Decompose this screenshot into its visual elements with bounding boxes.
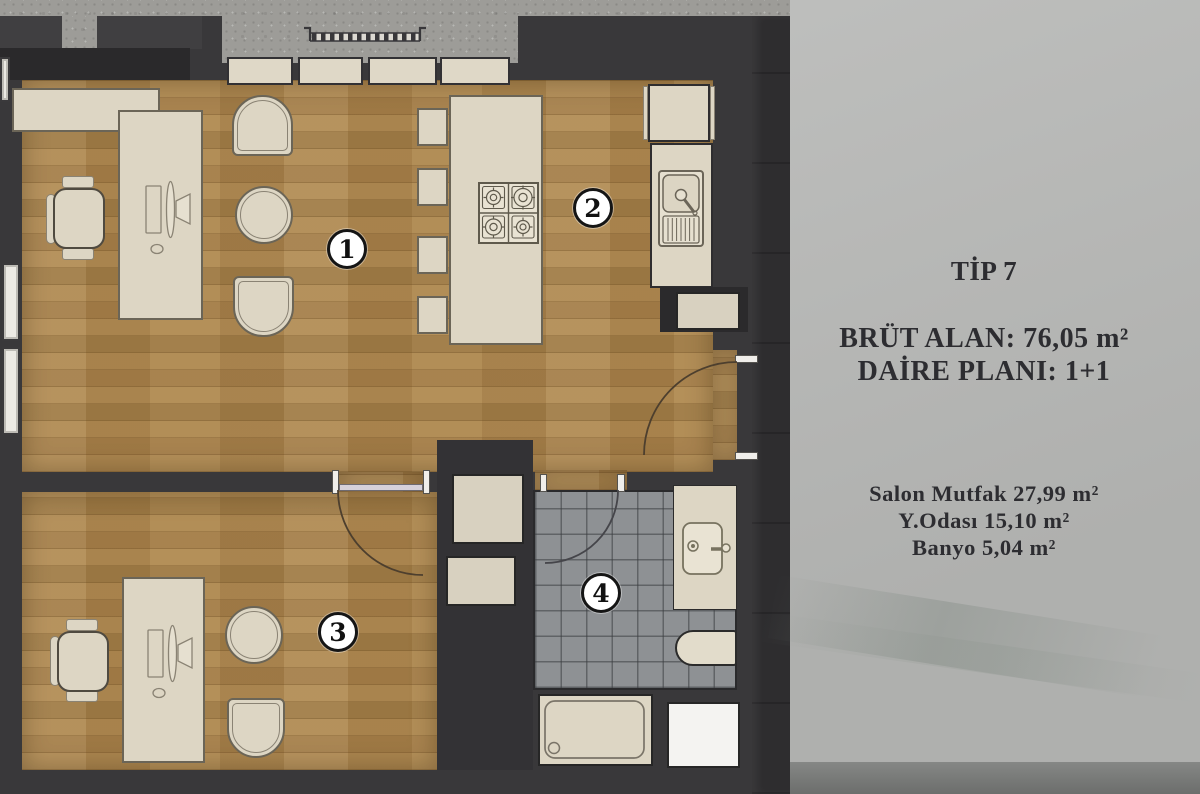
armchair [227, 698, 285, 758]
door-jamb [617, 474, 625, 492]
armchair-inner-line [237, 100, 288, 151]
panel-reflection [768, 575, 1200, 713]
wood-floor-entry [713, 350, 737, 460]
table-inner-line [230, 611, 278, 659]
door-jamb [735, 355, 758, 363]
panel-reflection [760, 612, 1200, 714]
room-badge-label: 4 [592, 581, 609, 606]
info-panel: TİP 7 BRÜT ALAN: 76,05 m² DAİRE PLANI: 1… [790, 0, 1200, 794]
top-window [368, 57, 437, 85]
armchair-inner-line [232, 703, 280, 753]
hall-cabinet [446, 556, 516, 606]
left-window [0, 57, 10, 102]
room-area-text-yodasi: Y.Odası 15,10 m² [790, 507, 1200, 534]
wood-floor-hall [535, 470, 627, 490]
concrete-terrace [222, 0, 518, 63]
kitchen-counter [650, 143, 713, 288]
office-chair-armrest [66, 619, 98, 631]
left-window [2, 263, 20, 341]
fridge-rail [710, 86, 715, 140]
office-chair-armrest [62, 176, 94, 188]
hall-cabinet [452, 474, 524, 544]
wall-segment [97, 16, 202, 49]
room-badge-1: 1 [327, 229, 367, 269]
floor-plan-page: 1 2 3 4 TİP 7 BRÜT ALAN: 76,05 m² DAİRE … [0, 0, 1200, 794]
room-area-text-salon: Salon Mutfak 27,99 m² [790, 480, 1200, 507]
room-badge-label: 3 [329, 620, 346, 645]
armchair [233, 276, 294, 337]
laundry-box [667, 702, 740, 768]
wall-segment [0, 16, 62, 49]
top-window [227, 57, 293, 85]
left-window [2, 347, 20, 435]
desk [118, 110, 203, 320]
plan-type-text: DAİRE PLANI: 1+1 [790, 355, 1200, 388]
top-window [440, 57, 510, 85]
door-jamb [540, 474, 547, 492]
exterior-wall-strip [752, 16, 790, 794]
shower-tray [538, 694, 653, 766]
bar-stool [417, 236, 448, 274]
top-window [298, 57, 363, 85]
bar-stool [417, 168, 448, 206]
room-badge-4: 4 [581, 573, 621, 613]
fridge [648, 84, 710, 142]
kitchen-island [449, 95, 543, 345]
door-jamb [423, 470, 430, 494]
niche-cabinet [676, 292, 740, 330]
toilet [675, 630, 737, 666]
room-badge-3: 3 [318, 612, 358, 652]
room-badge-2: 2 [573, 188, 613, 228]
door-jamb [332, 470, 339, 494]
plan-title: TİP 7 [790, 256, 1200, 287]
desk [122, 577, 205, 763]
armchair-inner-line [238, 281, 289, 332]
wall-dark-block [0, 48, 190, 80]
office-chair-seat [53, 188, 105, 249]
room-area-text-banyo: Banyo 5,04 m² [790, 534, 1200, 561]
terrace-door-gap [62, 16, 98, 49]
gross-area-text: BRÜT ALAN: 76,05 m² [790, 322, 1200, 355]
armchair [232, 95, 293, 156]
panel-footer-band [790, 762, 1200, 794]
bar-stool [417, 108, 448, 146]
office-chair-armrest [62, 248, 94, 260]
room-badge-label: 2 [584, 196, 601, 221]
floor-plan: 1 2 3 4 [0, 0, 790, 794]
stool-inner-line [240, 191, 288, 239]
bedroom-door-leaf [339, 484, 423, 491]
round-stool [235, 186, 293, 244]
room-badge-label: 1 [338, 237, 355, 262]
office-chair-seat [57, 631, 109, 692]
vanity [673, 485, 737, 610]
round-table [225, 606, 283, 664]
bar-stool [417, 296, 448, 334]
door-jamb [735, 452, 758, 460]
